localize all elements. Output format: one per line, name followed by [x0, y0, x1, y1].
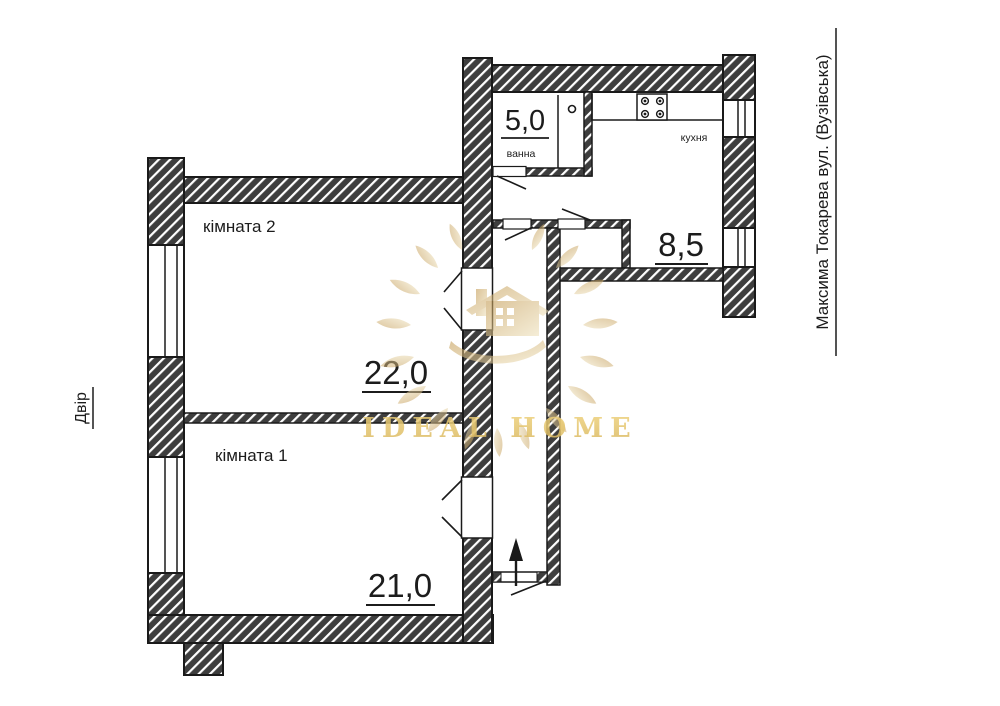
- wall-closet-right: [622, 220, 630, 268]
- walls: [148, 55, 755, 675]
- door-swing-icon: [562, 209, 590, 220]
- door-opening-bathroom: [493, 167, 526, 177]
- side-label-left: Двір: [73, 387, 93, 429]
- bathroom-area: 5,0: [505, 105, 545, 137]
- door-swing-icon: [444, 308, 462, 330]
- wall-bottom: [148, 615, 493, 643]
- wall-bath-kitchen: [584, 92, 592, 176]
- wall-corridor-right: [547, 228, 560, 585]
- watermark-text: IDEAL HOME: [362, 413, 637, 444]
- gas-stove-icon: [637, 94, 667, 120]
- room1-name: кімната 1: [215, 446, 288, 465]
- window-room1: [148, 457, 184, 573]
- window-kitchen-bottom: [723, 228, 755, 267]
- door-swing-icon: [442, 517, 462, 537]
- windows: [148, 100, 755, 573]
- window-room2: [148, 245, 184, 357]
- bathroom-name: ванна: [507, 148, 536, 160]
- door-opening-closet: [558, 219, 585, 229]
- side-label-right: Максима Токарева вул. (Вузівська): [813, 28, 836, 356]
- kitchen-area: 8,5: [658, 226, 704, 263]
- wall-right: [723, 55, 755, 317]
- yard-label: Двір: [73, 392, 90, 424]
- wall-center-column: [463, 58, 492, 643]
- floor-plan-drawing: кімната 2 22,0 кімната 1 21,0 5,0 ванна …: [0, 0, 1000, 706]
- door-opening-room1: [462, 477, 493, 538]
- room1-area: 21,0: [368, 567, 432, 604]
- wall-block-top: [492, 65, 723, 92]
- watermark: IDEAL HOME: [362, 222, 637, 457]
- door-swing-icon: [442, 480, 462, 500]
- floor-plan-page: кімната 2 22,0 кімната 1 21,0 5,0 ванна …: [0, 0, 1000, 706]
- wall-bottom-stub: [184, 643, 223, 675]
- room2-name: кімната 2: [203, 217, 276, 236]
- kitchen-name: кухня: [681, 132, 708, 144]
- street-label: Максима Токарева вул. (Вузівська): [813, 54, 832, 329]
- door-opening-hall: [503, 219, 531, 229]
- boiler-icon: [569, 106, 576, 113]
- door-swing-icon: [444, 271, 462, 292]
- window-kitchen-top: [723, 100, 755, 137]
- entrance-jamb-left: [493, 572, 501, 582]
- wall-rooms-top: [184, 177, 465, 203]
- wall-kitchen-bottom: [547, 268, 723, 281]
- door-swing-icon: [497, 176, 526, 189]
